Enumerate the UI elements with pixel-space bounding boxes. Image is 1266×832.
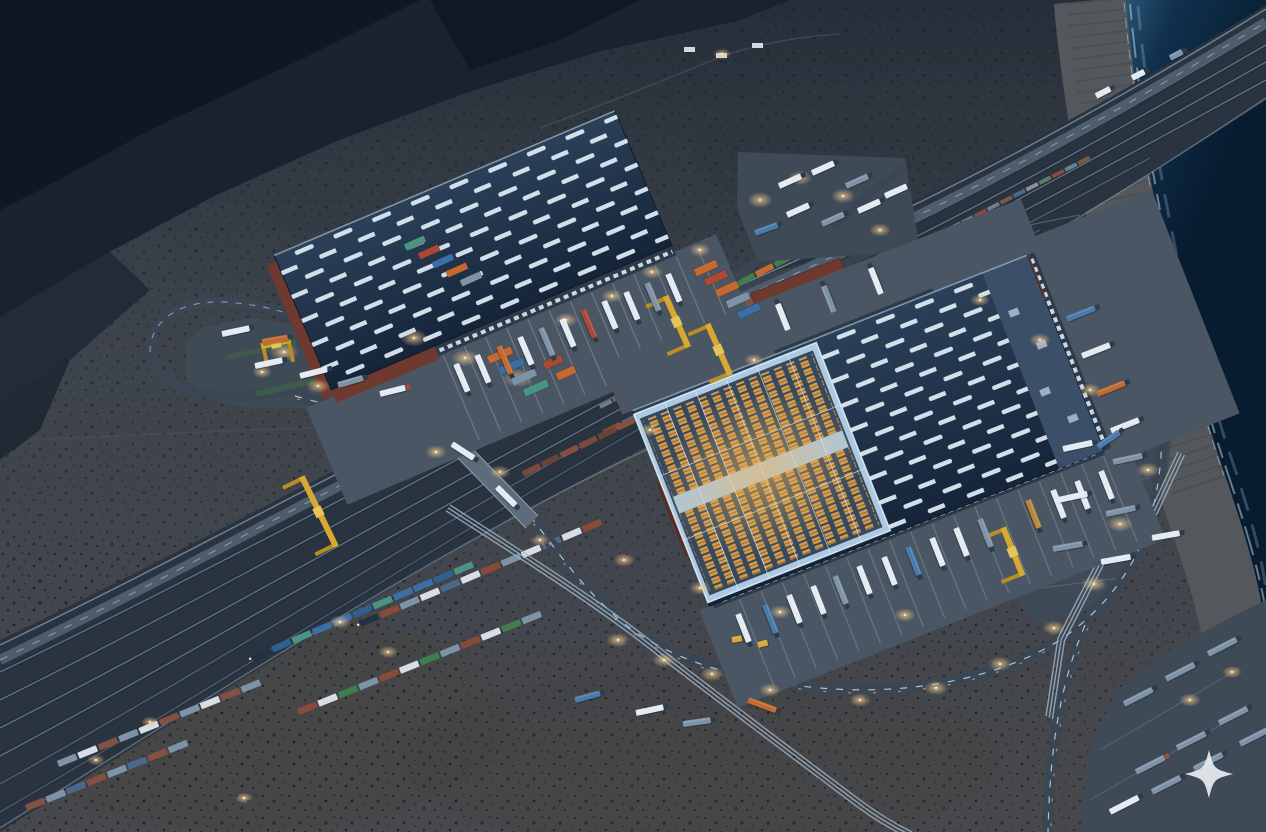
street-light [530,534,550,546]
lamp-dot [842,195,844,197]
street-light [1179,693,1201,707]
street-light [924,681,948,696]
lamp-dot [999,663,1001,665]
lamp-dot [413,337,415,339]
lamp-dot [464,357,466,359]
street-light [970,294,990,306]
street-light [1029,333,1051,347]
aerial-logistics-render [0,0,1266,832]
truck-cab [1083,540,1088,546]
lamp-dot [539,539,541,541]
street-light [1081,576,1107,592]
street-light [689,243,711,257]
lamp-dot [651,271,653,273]
lamp-dot [499,471,501,473]
lamp-dot [1093,583,1095,585]
lamp-dot [649,429,651,431]
lamp-dot [149,721,151,723]
lamp-dot [261,371,263,373]
street-light [849,693,871,707]
lamp-dot [611,295,613,297]
street-light [306,379,330,394]
street-light [831,189,855,204]
lamp-dot [699,249,701,251]
street-light [489,465,511,479]
lamp-dot [283,351,285,353]
lamp-dot [699,587,701,589]
street-light [641,265,663,279]
street-light [1222,666,1242,678]
street-light [744,354,764,366]
lamp-dot [1039,339,1041,341]
lamp-dot [1119,523,1121,525]
street-light [1107,516,1133,532]
lamp-dot [317,385,319,387]
lamp-dot [721,53,723,55]
lamp-dot [663,659,665,661]
street-light [235,792,253,803]
lamp-dot [859,699,861,701]
lamp-dot [753,359,755,361]
street-light [400,329,428,346]
street-light [87,754,105,765]
lamp-dot [979,299,981,301]
lamp-dot [779,611,781,613]
lamp-dot [935,687,937,689]
lamp-dot [1089,389,1091,391]
street-light [1136,463,1160,478]
lamp-dot [1053,627,1055,629]
truck-cab [288,334,293,340]
street-light [606,633,630,648]
lamp-dot [769,689,771,691]
street-light [689,581,711,595]
truck-cab [1180,530,1185,536]
lamp-dot [243,797,245,799]
street-light [1042,621,1066,636]
street-light [613,553,635,567]
scene-canvas [0,0,1266,832]
lamp-dot [1189,699,1191,701]
lamp-dot [435,451,437,453]
street-light [640,424,660,436]
lamp-dot [339,621,341,623]
lamp-dot [1147,469,1149,471]
lamp-dot [617,639,619,641]
street-light [601,289,623,303]
street-light [425,445,447,459]
street-light [652,653,676,668]
street-light [378,646,398,658]
lamp-dot [387,651,389,653]
lamp-dot [711,673,713,675]
street-light [700,667,724,682]
lamp-dot [95,759,97,761]
truck-cab [711,717,716,723]
street-light [759,683,781,697]
lamp-dot [1231,671,1233,673]
lamp-dot [879,229,881,231]
truck-cab [1131,553,1136,559]
street-light [141,716,159,727]
street-light [869,223,891,237]
lamp-dot [759,199,761,201]
street-light [988,657,1012,672]
lamp-dot [623,559,625,561]
street-light [747,192,773,208]
lamp-dot [904,614,906,616]
street-light [894,608,916,622]
street-light [329,615,351,629]
street-light [713,48,731,59]
